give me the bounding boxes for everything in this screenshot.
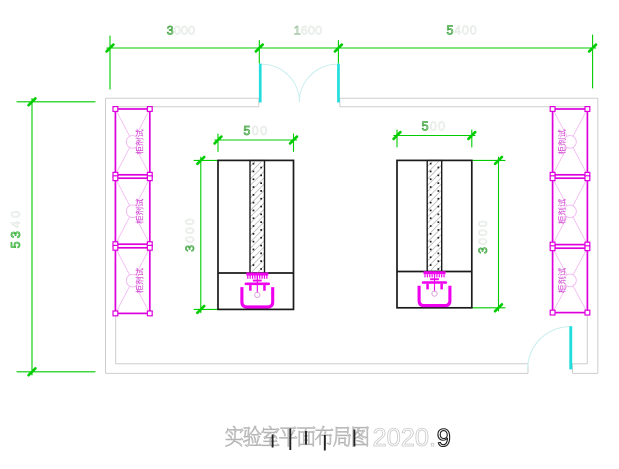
svg-text:3000: 3000 (183, 216, 197, 252)
svg-text:5400: 5400 (446, 24, 477, 38)
svg-text:500: 500 (243, 124, 268, 138)
svg-text:3000: 3000 (167, 24, 196, 38)
svg-text:2020.: 2020. (373, 424, 437, 452)
svg-text:3000: 3000 (476, 218, 490, 254)
svg-text:5340: 5340 (9, 208, 23, 249)
svg-text:9: 9 (437, 425, 451, 453)
svg-text:500: 500 (422, 120, 447, 134)
svg-text:1600: 1600 (294, 24, 323, 38)
